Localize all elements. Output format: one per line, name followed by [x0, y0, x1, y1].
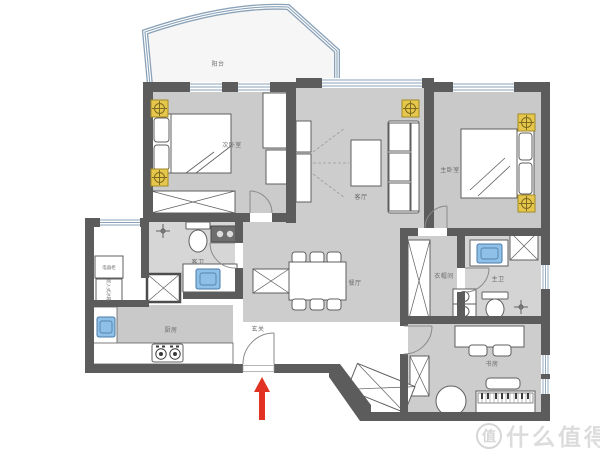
- room-label-bath-guest: 客卫: [191, 258, 204, 266]
- floorplan-image: 阳台 次卧室 客厅 主卧室 衣帽间 主卫 书房 餐厅 玄关 厨房 客卫 电器柜 …: [0, 0, 600, 453]
- toilet: [189, 230, 207, 252]
- dining-chair: [292, 299, 306, 310]
- room-label-bedroom-master: 主卧室: [440, 166, 460, 174]
- room-label-entry: 玄关: [251, 325, 264, 333]
- room-label-bath-master: 主卫: [491, 275, 504, 283]
- sofa-cushion: [389, 153, 410, 181]
- tv-cabinet: [296, 154, 311, 202]
- door-arc: [243, 333, 274, 364]
- piano-bench: [486, 378, 520, 389]
- ceiling-light-icon: [518, 114, 535, 131]
- room-label-closet: 衣帽间: [434, 272, 454, 280]
- pouf: [436, 386, 466, 416]
- closet-furniture: [408, 240, 430, 322]
- floor-kitchen-island: [117, 305, 233, 343]
- room-label-kitchen: 厨房: [164, 326, 177, 334]
- cabinet-label-appliance: 电器柜: [102, 264, 116, 271]
- watermark-text: 什么值得买: [506, 424, 600, 451]
- desk-chair: [493, 345, 511, 356]
- toilet-tank: [482, 292, 508, 299]
- room-label-living: 客厅: [354, 193, 367, 201]
- sofa-backrest: [411, 123, 419, 211]
- dining-chair: [292, 252, 306, 263]
- pillow: [154, 118, 169, 142]
- room-label-study: 书房: [485, 360, 498, 368]
- sofa-cushion: [389, 183, 410, 211]
- room-label-balcony: 阳台: [211, 60, 224, 68]
- desk-chair: [469, 345, 487, 356]
- bedroom-master-furniture: [461, 129, 534, 198]
- ceiling-light-icon: [518, 195, 535, 212]
- window: [541, 265, 550, 289]
- window: [238, 82, 270, 92]
- dining-chair: [310, 252, 324, 263]
- vanity: [211, 226, 239, 242]
- pillow: [154, 145, 169, 170]
- coffee-table: [351, 140, 381, 186]
- dining-chair: [327, 252, 341, 263]
- window: [190, 82, 222, 92]
- side-cabinet: [263, 93, 287, 148]
- ceiling-light-icon: [402, 100, 419, 117]
- ceiling-light-icon: [151, 100, 168, 117]
- pillow: [519, 133, 532, 160]
- dining-table: [289, 262, 346, 300]
- toilet-tank: [186, 222, 210, 229]
- watermark-logo: 值: [482, 428, 496, 445]
- ceiling-light-icon: [151, 169, 168, 186]
- window: [100, 218, 140, 227]
- window: [322, 78, 422, 88]
- room-label-dining: 餐厅: [348, 279, 361, 287]
- entrance-arrow-icon: [254, 377, 270, 420]
- desk: [455, 326, 524, 347]
- sofa-cushion: [389, 123, 410, 151]
- floorplan-svg: 阳台 次卧室 客厅 主卧室 衣帽间 主卫 书房 餐厅 玄关 厨房 客卫 电器柜 …: [0, 0, 600, 453]
- watermark: 值 什么值得买: [477, 424, 600, 451]
- cabinet-label-fridge: 嵌入式冰箱: [105, 279, 112, 302]
- balcony: [145, 7, 337, 85]
- dining-chair: [327, 299, 341, 310]
- room-label-bedroom-secondary: 次卧室: [222, 141, 242, 149]
- window: [541, 379, 550, 394]
- sink-basin: [196, 269, 220, 289]
- entry-threshold: [243, 366, 274, 372]
- tv-cabinet: [296, 121, 311, 152]
- window: [541, 355, 550, 374]
- pillow: [519, 163, 532, 194]
- side-cabinet: [266, 150, 287, 184]
- window: [453, 82, 514, 92]
- dining-chair: [310, 299, 324, 310]
